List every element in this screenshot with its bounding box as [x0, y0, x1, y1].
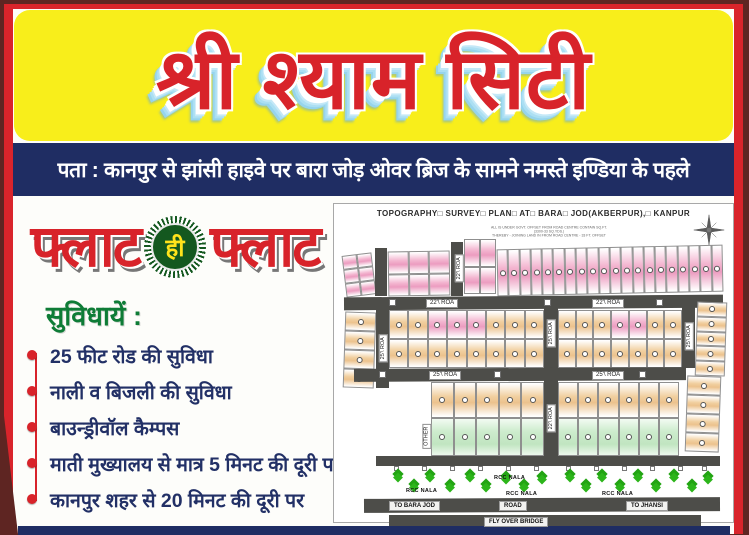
plot-number-marker: [590, 268, 596, 274]
plot-block: [389, 339, 544, 368]
road-sign-label: FLY OVER BRIDGE: [484, 517, 548, 527]
plot-number-marker: [439, 434, 445, 440]
plot-number-marker: [699, 439, 705, 445]
plot-number-marker: [626, 434, 632, 440]
plot-cell: [519, 249, 531, 296]
plot-number-marker: [635, 267, 641, 273]
plot-cell: [659, 382, 679, 418]
plot-number-marker: [666, 434, 672, 440]
road-label: 25'\ ROA: [592, 371, 624, 380]
plot-block: [431, 418, 544, 456]
plot-cell: [486, 310, 505, 339]
road-label: 25'\ ROA: [379, 334, 388, 362]
plot-number-marker: [473, 351, 479, 357]
amenity-text: बाउन्ड्रीवॉल कैम्पस: [50, 414, 179, 441]
tree-icon: [632, 468, 643, 479]
tree-icon: [480, 478, 491, 489]
plot-cell: [611, 339, 629, 368]
plat-drawing: 22'\ ROA22'\ ROA22'\ ROA25'\ ROA25'\ ROA…: [334, 204, 733, 522]
plot-block: [497, 245, 724, 297]
road-gate: [494, 371, 501, 378]
plot-row: [431, 382, 544, 418]
plot-cell: [695, 346, 725, 362]
plot-cell: [621, 247, 633, 294]
plot-number-marker: [565, 397, 571, 403]
plot-cell: [593, 339, 611, 368]
plot-number-marker: [500, 270, 506, 276]
plot-row: [685, 413, 720, 433]
boundary-tick: [650, 466, 655, 471]
plot-cell: [553, 248, 565, 295]
plot-cell: [686, 394, 721, 414]
plot-number-marker: [434, 322, 440, 328]
plot-cell: [619, 382, 639, 418]
plot-cell: [454, 418, 477, 456]
plot-number-marker: [708, 336, 714, 342]
plot-number-marker: [567, 268, 573, 274]
tree-icon: [686, 478, 697, 489]
rcc-nala-label: RCC NALA: [602, 491, 633, 497]
plot-cell: [388, 251, 409, 274]
plot-number-marker: [356, 356, 362, 362]
road-label: 22'\ ROA: [426, 299, 458, 308]
plot-row: [345, 311, 377, 331]
plot-cell: [408, 310, 427, 339]
tree-icon: [536, 470, 547, 481]
plot-number-marker: [646, 397, 652, 403]
plot-number-marker: [533, 269, 539, 275]
plot-cell: [429, 250, 450, 273]
plot-cell: [530, 248, 542, 295]
plot-number-marker: [454, 322, 460, 328]
plot-row: [497, 245, 724, 297]
plot-number-marker: [599, 322, 605, 328]
plot-number-marker: [624, 267, 630, 273]
tagline-word-right: फ्लाट: [210, 218, 319, 276]
plot-number-marker: [357, 318, 363, 324]
plot-row: [343, 349, 375, 369]
road-sign-label: ROAD: [499, 501, 527, 511]
plot-number-marker: [462, 397, 468, 403]
plot-row: [389, 339, 544, 368]
plot-cell: [464, 239, 480, 267]
road-gate: [639, 371, 646, 378]
plot-number-marker: [415, 322, 421, 328]
plot-cell: [587, 247, 599, 294]
plot-cell: [659, 418, 679, 456]
plot-number-marker: [669, 266, 675, 272]
bullet-icon: [27, 458, 37, 468]
plot-number-marker: [484, 434, 490, 440]
plot-cell: [666, 246, 678, 293]
road: [344, 295, 723, 311]
plot-cell: [564, 248, 576, 295]
plot-cell: [697, 301, 727, 317]
plot-cell: [389, 339, 408, 368]
plot-block: [695, 301, 728, 376]
address-bar: पता : कानपुर से झांसी हाइवे पर बारा जोड़…: [13, 143, 734, 196]
road-label: 22'\ ROA: [592, 299, 624, 308]
plot-block: [558, 418, 679, 456]
plot-cell: [499, 418, 522, 456]
plot-block: [464, 239, 496, 294]
plot-cell: [576, 247, 588, 294]
plot-cell: [632, 246, 644, 293]
plot-cell: [711, 245, 723, 292]
plot-cell: [521, 418, 544, 456]
road-gate: [656, 299, 663, 306]
road-sign-label: TO JHANSI: [626, 501, 668, 511]
plot-number-marker: [473, 322, 479, 328]
poster-title: श्री श्याम सिटी: [156, 18, 591, 133]
plot-cell: [558, 339, 576, 368]
plot-number-marker: [564, 322, 570, 328]
plot-cell: [344, 330, 376, 350]
plot-number-marker: [613, 267, 619, 273]
tree-icon: [464, 468, 475, 479]
plot-cell: [345, 282, 362, 298]
plot-number-marker: [599, 351, 605, 357]
plot-cell: [454, 382, 477, 418]
plot-row: [558, 339, 682, 368]
plot-number-marker: [484, 397, 490, 403]
plot-number-marker: [617, 351, 623, 357]
plot-cell: [619, 418, 639, 456]
plot-row: [686, 394, 721, 414]
road-label: 25'\ ROA: [685, 322, 694, 350]
starburst-badge: ही: [144, 216, 206, 278]
plot-number-marker: [357, 337, 363, 343]
amenity-item: बाउन्ड्रीवॉल कैम्पस: [27, 409, 342, 445]
plot-number-marker: [585, 397, 591, 403]
plot-cell: [408, 251, 429, 274]
plot-row: [695, 361, 725, 377]
road-gate: [544, 299, 551, 306]
plot-cell: [647, 339, 665, 368]
plot-row: [697, 301, 727, 317]
amenity-item: कानपुर शहर से 20 मिनट की दूरी पर: [27, 481, 342, 517]
plot-number-marker: [601, 268, 607, 274]
plot-number-marker: [585, 434, 591, 440]
plot-cell: [664, 310, 682, 339]
site-plan-panel: TOPOGRAPHY□ SURVEY□ PLAN□ AT□ BARA□ JOD(…: [333, 203, 734, 523]
bullet-icon: [27, 386, 37, 396]
plot-block: [431, 382, 544, 418]
amenity-text: नाली व बिजली की सुविधा: [50, 378, 232, 405]
plot-number-marker: [462, 434, 468, 440]
plot-cell: [464, 267, 480, 295]
plot-number-marker: [635, 322, 641, 328]
bullet-icon: [27, 494, 37, 504]
plot-row: [696, 331, 726, 347]
plot-block: [558, 310, 682, 339]
plot-row: [388, 250, 450, 274]
plot-cell: [497, 249, 509, 296]
boundary-tick: [478, 466, 483, 471]
plot-number-marker: [652, 351, 658, 357]
plot-number-marker: [670, 351, 676, 357]
plot-block: [558, 382, 679, 418]
plot-cell: [696, 331, 726, 347]
plot-cell: [576, 339, 594, 368]
plot-cell: [505, 310, 524, 339]
plot-block: [342, 252, 377, 297]
address-text: पता : कानपुर से झांसी हाइवे पर बारा जोड़…: [58, 156, 690, 184]
plot-cell: [578, 418, 598, 456]
plot-number-marker: [396, 322, 402, 328]
plot-number-marker: [415, 351, 421, 357]
plot-cell: [685, 413, 720, 433]
plot-number-marker: [707, 351, 713, 357]
plot-number-marker: [522, 269, 528, 275]
plot-number-marker: [493, 351, 499, 357]
boundary-tick: [534, 466, 539, 471]
plot-number-marker: [545, 269, 551, 275]
plot-number-marker: [708, 321, 714, 327]
plot-cell: [345, 311, 377, 331]
plot-cell: [687, 375, 722, 395]
plot-number-marker: [454, 351, 460, 357]
plot-cell: [542, 248, 554, 295]
plot-number-marker: [635, 351, 641, 357]
plot-number-marker: [579, 268, 585, 274]
plot-number-marker: [396, 351, 402, 357]
boundary-tick: [622, 466, 627, 471]
plot-cell: [388, 274, 409, 297]
plot-number-marker: [439, 397, 445, 403]
plot-cell: [360, 280, 377, 296]
plot-cell: [508, 249, 520, 296]
plot-cell: [431, 418, 454, 456]
road-label: 25'\ ROA: [547, 319, 556, 347]
plot-cell: [598, 247, 610, 294]
plot-cell: [647, 310, 665, 339]
plot-row: [431, 418, 544, 456]
tree-icon: [614, 478, 625, 489]
plot-cell: [689, 245, 701, 292]
road-gate: [379, 371, 386, 378]
plot-cell: [480, 239, 496, 267]
plot-cell: [409, 273, 430, 296]
plot-cell: [521, 382, 544, 418]
plot-row: [558, 418, 679, 456]
road: [375, 248, 387, 296]
plot-row: [696, 316, 726, 332]
plot-number-marker: [646, 267, 652, 273]
plot-cell: [447, 339, 466, 368]
plot-number-marker: [605, 397, 611, 403]
plot-number-marker: [512, 322, 518, 328]
road: [354, 367, 686, 382]
tree-icon: [650, 478, 661, 489]
plot-row: [558, 310, 682, 339]
road-label: OTHER: [422, 424, 431, 449]
tagline-word-left: फ्लाट: [31, 218, 140, 276]
road: [376, 456, 720, 466]
rcc-nala-label: RCC NALA: [506, 491, 537, 497]
plot-cell: [428, 339, 447, 368]
plot-row: [685, 432, 720, 452]
plot-cell: [480, 267, 496, 295]
tagline: फ्लाट ही फ्लाट: [19, 207, 331, 287]
road-label: 25'\ ROA: [429, 371, 461, 380]
plot-number-marker: [666, 397, 672, 403]
plot-row: [464, 267, 496, 295]
plot-row: [344, 330, 376, 350]
plot-number-marker: [700, 401, 706, 407]
plot-number-marker: [626, 397, 632, 403]
plot-cell: [343, 349, 375, 369]
plot-cell: [447, 310, 466, 339]
amenity-text: माती मुख्यालय से मात्र 5 मिनट की दूरी पर: [50, 450, 342, 477]
plot-cell: [558, 382, 578, 418]
amenity-item: नाली व बिजली की सुविधा: [27, 373, 342, 409]
plot-number-marker: [714, 265, 720, 271]
plot-row: [687, 375, 722, 395]
plot-row: [558, 382, 679, 418]
plot-cell: [598, 418, 618, 456]
bullet-icon: [27, 422, 37, 432]
plot-number-marker: [531, 351, 537, 357]
plot-cell: [695, 361, 725, 377]
plot-cell: [431, 382, 454, 418]
plot-number-marker: [512, 351, 518, 357]
plot-block: [389, 310, 544, 339]
plot-number-marker: [530, 397, 536, 403]
plot-cell: [700, 245, 712, 292]
plot-number-marker: [493, 322, 499, 328]
plot-cell: [558, 310, 576, 339]
plot-number-marker: [709, 306, 715, 312]
plot-number-marker: [564, 351, 570, 357]
plot-number-marker: [582, 322, 588, 328]
plot-cell: [476, 382, 499, 418]
plot-cell: [389, 310, 408, 339]
road-label: 22'\ ROA: [547, 404, 556, 432]
plot-cell: [429, 273, 450, 296]
plot-row: [389, 310, 544, 339]
plot-number-marker: [658, 266, 664, 272]
road-sign-label: TO BARA JOD: [389, 501, 440, 511]
plot-number-marker: [605, 434, 611, 440]
plot-cell: [639, 418, 659, 456]
tree-icon: [580, 478, 591, 489]
plot-block: [388, 250, 451, 296]
plot-number-marker: [701, 382, 707, 388]
plot-number-marker: [511, 269, 517, 275]
plot-cell: [576, 310, 594, 339]
plot-cell: [525, 310, 544, 339]
plot-cell: [467, 310, 486, 339]
boundary-tick: [450, 466, 455, 471]
plot-cell: [505, 339, 524, 368]
plot-cell: [499, 382, 522, 418]
boundary-tick: [678, 466, 683, 471]
amenities-heading: सुविधायें :: [46, 296, 142, 333]
plot-cell: [696, 316, 726, 332]
plot-cell: [593, 310, 611, 339]
plot-number-marker: [556, 269, 562, 275]
plot-cell: [428, 310, 447, 339]
plot-cell: [611, 310, 629, 339]
amenity-text: 25 फीट रोड की सुविधा: [50, 342, 213, 369]
plot-number-marker: [652, 322, 658, 328]
plot-cell: [629, 339, 647, 368]
plot-row: [345, 280, 376, 298]
badge-text: ही: [151, 223, 199, 271]
amenities-list: 25 फीट रोड की सुविधानाली व बिजली की सुवि…: [27, 337, 342, 517]
plot-number-marker: [692, 266, 698, 272]
plot-row: [388, 273, 450, 297]
amenity-item: 25 फीट रोड की सुविधा: [27, 337, 342, 373]
poster: { "poster": { "title": "श्री श्याम सिटी"…: [0, 0, 749, 534]
tree-icon: [444, 478, 455, 489]
plot-number-marker: [707, 365, 713, 371]
plot-cell: [639, 382, 659, 418]
road-label: 22'\ ROA: [455, 254, 464, 282]
plot-cell: [467, 339, 486, 368]
plot-number-marker: [507, 397, 513, 403]
amenity-item: माती मुख्यालय से मात्र 5 मिनट की दूरी पर: [27, 445, 342, 481]
plot-number-marker: [530, 434, 536, 440]
plot-cell: [609, 247, 621, 294]
plot-block: [558, 339, 682, 368]
plot-block: [685, 375, 722, 452]
plot-number-marker: [703, 265, 709, 271]
plot-cell: [525, 339, 544, 368]
tree-icon: [702, 470, 713, 481]
plot-cell: [643, 246, 655, 293]
plot-cell: [664, 339, 682, 368]
plot-number-marker: [680, 266, 686, 272]
plot-cell: [558, 418, 578, 456]
plot-cell: [677, 245, 689, 292]
road-gate: [389, 299, 396, 306]
plot-number-marker: [434, 351, 440, 357]
plot-number-marker: [507, 434, 513, 440]
plot-cell: [476, 418, 499, 456]
rcc-nala-label: RCC NALA: [406, 488, 437, 494]
plot-number-marker: [565, 434, 571, 440]
plot-number-marker: [670, 322, 676, 328]
plot-number-marker: [700, 420, 706, 426]
plot-cell: [598, 382, 618, 418]
plot-number-marker: [646, 434, 652, 440]
plot-number-marker: [531, 322, 537, 328]
plot-number-marker: [582, 351, 588, 357]
plot-cell: [408, 339, 427, 368]
plot-row: [464, 239, 496, 267]
title-banner: श्री श्याम सिटी: [14, 10, 733, 141]
content-area: श्री श्याम सिटी पता : कानपुर से झांसी हा…: [13, 9, 734, 534]
bullet-icon: [27, 350, 37, 360]
plot-cell: [486, 339, 505, 368]
plot-cell: [655, 246, 667, 293]
plot-number-marker: [617, 322, 623, 328]
plot-row: [695, 346, 725, 362]
amenity-text: कानपुर शहर से 20 मिनट की दूरी पर: [50, 486, 304, 513]
plot-cell: [685, 432, 720, 452]
rcc-nala-label: RCC NALA: [494, 475, 525, 481]
plot-cell: [629, 310, 647, 339]
plot-cell: [578, 382, 598, 418]
